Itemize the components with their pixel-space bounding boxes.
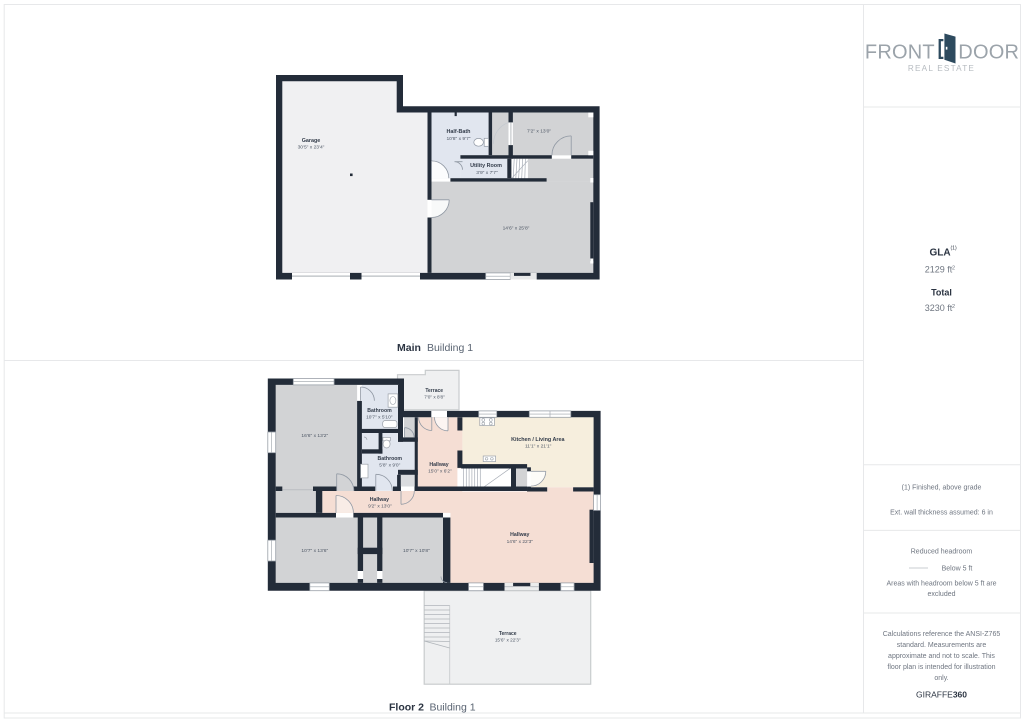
svg-text:15'6" x 22'3": 15'6" x 22'3" xyxy=(495,638,521,643)
svg-text:REAL ESTATE: REAL ESTATE xyxy=(908,64,975,73)
svg-text:Bathroom: Bathroom xyxy=(367,408,392,414)
svg-text:(1): (1) xyxy=(951,246,957,252)
svg-text:3'9" x 7'7": 3'9" x 7'7" xyxy=(476,170,498,176)
svg-text:11'1" x 21'1": 11'1" x 21'1" xyxy=(525,444,552,450)
svg-text:approximate and not to scale.: approximate and not to scale. This xyxy=(888,653,995,660)
svg-text:Terrace: Terrace xyxy=(425,388,443,394)
svg-text:(1) Finished, above grade: (1) Finished, above grade xyxy=(902,485,982,492)
svg-text:Total: Total xyxy=(931,288,952,298)
svg-text:GIRAFFE360: GIRAFFE360 xyxy=(916,690,967,700)
svg-text:Ext. wall thickness assumed: 6: Ext. wall thickness assumed: 6 in xyxy=(890,510,993,517)
svg-text:FRONT: FRONT xyxy=(865,42,935,64)
svg-text:Building 1: Building 1 xyxy=(429,701,475,713)
svg-text:Garage: Garage xyxy=(302,138,321,144)
svg-text:Terrace: Terrace xyxy=(499,631,517,637)
svg-text:10'7" x 5'10": 10'7" x 5'10" xyxy=(366,415,393,421)
svg-text:15'0" x 6'2": 15'0" x 6'2" xyxy=(428,468,452,474)
svg-text:floor plan is intended for ill: floor plan is intended for illustration xyxy=(887,664,995,671)
svg-text:10'7" x 10'8": 10'7" x 10'8" xyxy=(403,548,430,554)
svg-text:Hallway: Hallway xyxy=(510,532,529,538)
svg-text:DOOR: DOOR xyxy=(958,42,1019,64)
svg-text:Hallway: Hallway xyxy=(370,497,389,503)
svg-text:Utility Room: Utility Room xyxy=(470,163,502,169)
svg-text:Building 1: Building 1 xyxy=(427,342,473,354)
svg-text:Reduced headroom: Reduced headroom xyxy=(911,549,973,556)
svg-text:10'7" x 13'6": 10'7" x 13'6" xyxy=(301,548,328,554)
svg-text:2: 2 xyxy=(952,304,955,310)
svg-text:14'6" x 22'3": 14'6" x 22'3" xyxy=(507,539,534,545)
svg-text:16'6" x 13'2": 16'6" x 13'2" xyxy=(301,433,328,439)
svg-text:Hallway: Hallway xyxy=(429,462,448,468)
svg-text:GLA: GLA xyxy=(929,248,950,259)
svg-text:3230 ft: 3230 ft xyxy=(925,303,953,313)
svg-text:Calculations reference the ANS: Calculations reference the ANSI-Z765 xyxy=(883,631,1001,638)
svg-text:Bathroom: Bathroom xyxy=(378,456,403,462)
svg-text:5'8" x 9'0": 5'8" x 9'0" xyxy=(379,462,400,468)
svg-text:30'5" x 23'4": 30'5" x 23'4" xyxy=(298,145,325,151)
svg-text:2: 2 xyxy=(952,266,955,272)
svg-text:only.: only. xyxy=(934,675,948,682)
svg-text:standard. Measurements are: standard. Measurements are xyxy=(897,642,987,649)
svg-text:10'8" x 9'7": 10'8" x 9'7" xyxy=(446,136,470,142)
svg-text:Main: Main xyxy=(397,342,421,354)
svg-text:Areas with headroom below 5 ft: Areas with headroom below 5 ft are xyxy=(886,581,996,588)
svg-text:2129 ft: 2129 ft xyxy=(925,265,953,275)
svg-text:Below 5 ft: Below 5 ft xyxy=(942,566,973,573)
svg-text:Half-Bath: Half-Bath xyxy=(447,129,471,135)
svg-text:7'2" x 13'0": 7'2" x 13'0" xyxy=(527,129,551,135)
svg-text:14'6" x 25'8": 14'6" x 25'8" xyxy=(503,226,530,232)
svg-text:9'2" x 13'0": 9'2" x 13'0" xyxy=(368,504,392,510)
svg-text:Floor 2: Floor 2 xyxy=(389,701,424,713)
svg-text:excluded: excluded xyxy=(927,591,955,598)
svg-text:Kitchen / Living Area: Kitchen / Living Area xyxy=(511,437,565,443)
svg-text:7'0" x 8'8": 7'0" x 8'8" xyxy=(424,394,445,399)
